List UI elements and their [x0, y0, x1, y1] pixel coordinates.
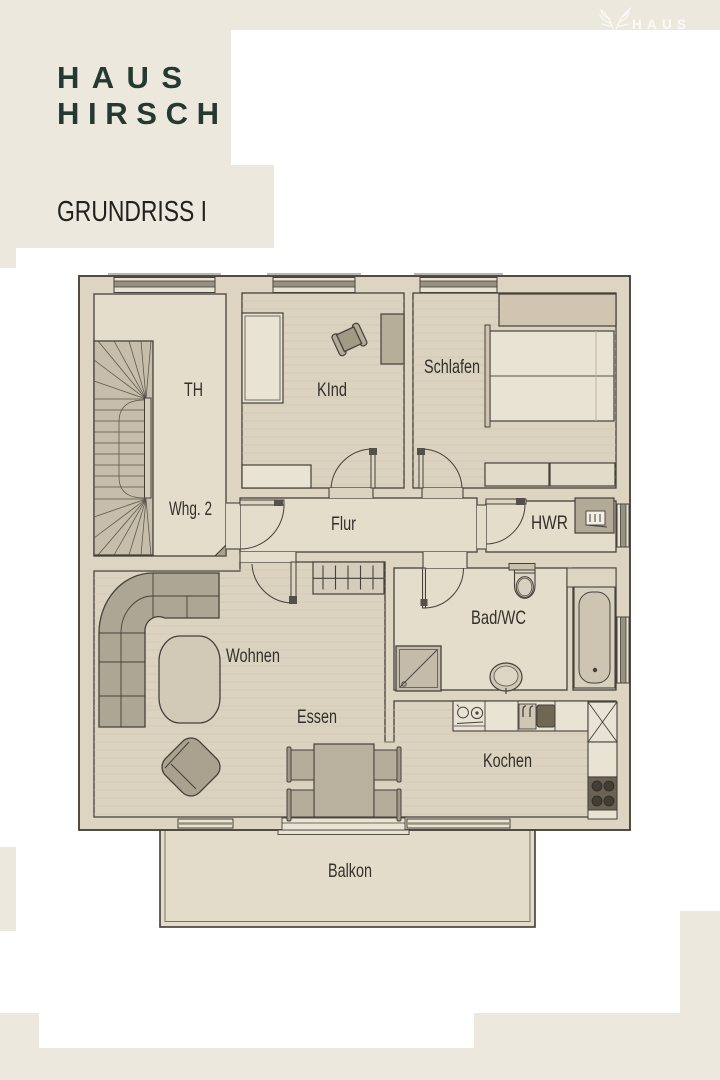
svg-text:KInd: KInd: [317, 379, 347, 401]
svg-text:Wohnen: Wohnen: [226, 645, 280, 667]
svg-text:Schlafen: Schlafen: [424, 356, 480, 378]
svg-text:Whg. 2: Whg. 2: [169, 498, 212, 520]
svg-text:Balkon: Balkon: [328, 860, 372, 882]
svg-text:Kochen: Kochen: [483, 750, 532, 772]
svg-text:Essen: Essen: [297, 706, 337, 728]
svg-text:HWR: HWR: [531, 512, 568, 534]
svg-text:TH: TH: [184, 379, 203, 401]
svg-text:Flur: Flur: [331, 513, 356, 535]
svg-text:Bad/WC: Bad/WC: [471, 607, 526, 629]
svg-text:GRUNDRISS I: GRUNDRISS I: [57, 196, 207, 228]
